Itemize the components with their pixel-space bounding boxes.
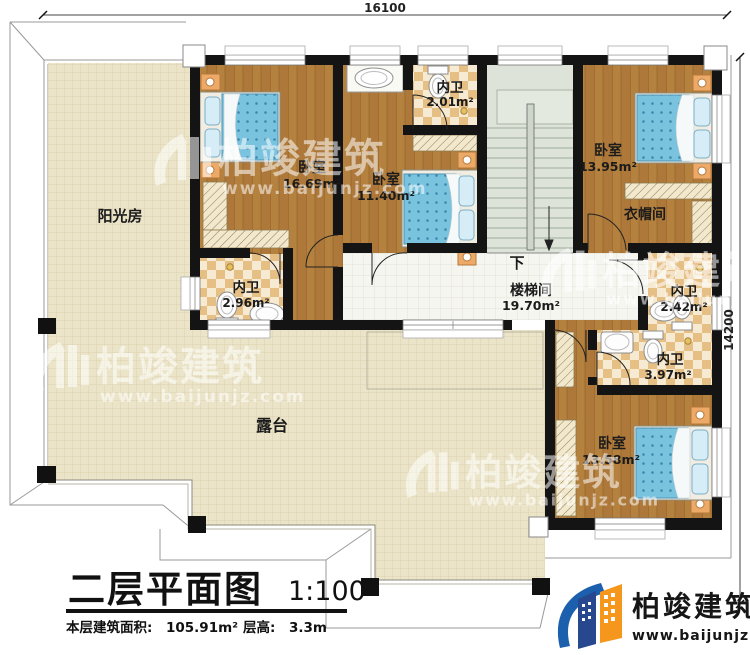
stair-railing <box>527 104 534 250</box>
brand-logo: 柏竣建筑 www.baijunjz.com <box>558 583 750 649</box>
stairwell-area: 19.70m² <box>502 298 560 313</box>
bedroom2-vanity <box>347 65 403 92</box>
sunroom-label: 阳光房 <box>97 207 142 225</box>
plan-title: 二层平面图 <box>68 568 263 611</box>
plan-scale: 1:100 <box>288 576 366 607</box>
brand-name: 柏竣建筑 <box>632 590 750 623</box>
cloakroom-label: 衣帽间 <box>624 206 666 223</box>
svg-text:16100: 16100 <box>364 1 406 15</box>
title-block: 二层平面图 1:100 本层建筑面积: 105.91m² 层高: 3.3m <box>66 568 366 636</box>
height-label: 层高: <box>243 619 275 636</box>
area-label: 本层建筑面积: <box>66 619 152 636</box>
floor-plan-page: 柏竣建筑 www.baijunjz.com <box>0 0 750 655</box>
height-value: 3.3m <box>289 620 327 636</box>
bath2-area: 2.01m² <box>426 95 473 109</box>
bedroom3-label: 卧室 <box>594 142 622 159</box>
bedroom1-closet-horizontal <box>203 230 289 248</box>
corridor-closet <box>556 332 574 387</box>
bedroom2-closet <box>413 135 477 151</box>
dimension-top: 16100 <box>39 1 731 19</box>
cloakroom-closet-horizontal <box>625 183 712 199</box>
bath1-label: 内卫 <box>233 279 260 296</box>
cloakroom-closet-vertical <box>692 201 712 245</box>
bath4-area: 3.97m² <box>644 368 691 382</box>
bath1-area: 2.96m² <box>222 296 269 310</box>
area-value: 105.91m² <box>166 620 238 636</box>
brand-website: www.baijunjz.com <box>632 628 750 644</box>
terrace-label: 露台 <box>256 416 288 435</box>
svg-text:14200: 14200 <box>722 309 736 351</box>
bath4-label: 内卫 <box>657 351 685 368</box>
stair-down-label: 下 <box>509 254 524 272</box>
bedroom3-area: 13.95m² <box>579 159 637 174</box>
bath2-label: 内卫 <box>437 79 464 96</box>
title-underline <box>66 609 347 613</box>
floor-plan-canvas: 柏竣建筑 www.baijunjz.com <box>0 0 750 655</box>
